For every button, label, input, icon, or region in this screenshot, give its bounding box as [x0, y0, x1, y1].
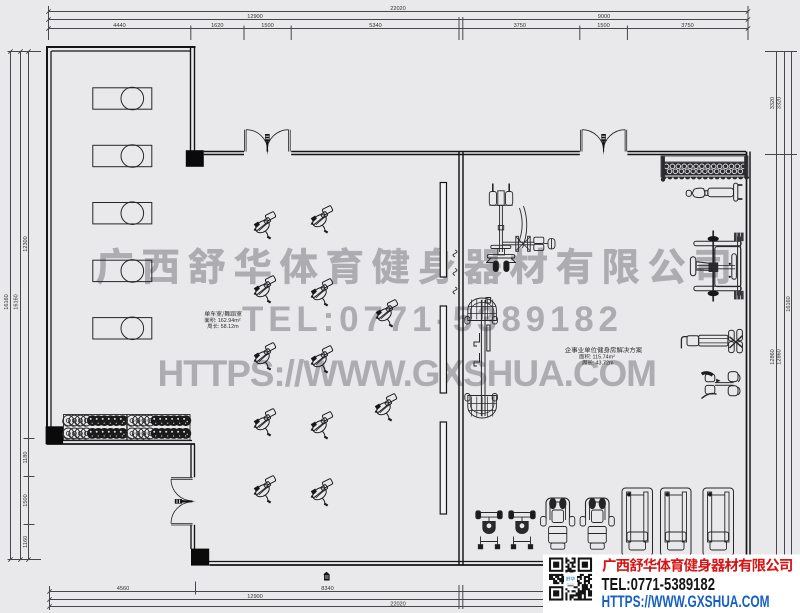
svg-text:16160: 16160: [14, 294, 20, 310]
svg-text:12860: 12860: [777, 349, 783, 365]
svg-text:TEL:0771-5389182: TEL:0771-5389182: [242, 300, 618, 339]
svg-text:1160: 1160: [23, 536, 29, 548]
svg-text:HTTPS://WWW.GXSHUA.COM: HTTPS://WWW.GXSHUA.COM: [602, 592, 770, 611]
svg-text:TEL:0771-5389182: TEL:0771-5389182: [602, 574, 716, 594]
svg-text:1500: 1500: [23, 494, 29, 506]
svg-text:22020: 22020: [390, 601, 406, 607]
svg-text:5340: 5340: [369, 23, 381, 29]
svg-text:1180: 1180: [23, 451, 29, 463]
svg-text:3750: 3750: [681, 23, 693, 29]
svg-text:3750: 3750: [514, 23, 526, 29]
svg-text:: 115.74m²: : 115.74m²: [590, 354, 616, 360]
svg-text:16160: 16160: [4, 294, 10, 310]
svg-text:4440: 4440: [113, 23, 125, 29]
svg-text:22020: 22020: [390, 6, 406, 12]
svg-text:: 58.12m: : 58.12m: [218, 324, 239, 330]
svg-text:1500: 1500: [597, 23, 609, 29]
svg-text:16160: 16160: [786, 296, 792, 312]
svg-text:12900: 12900: [247, 594, 263, 600]
svg-text:SHUA: SHUA: [567, 582, 574, 586]
svg-text:4560: 4560: [117, 586, 129, 592]
svg-text:1620: 1620: [211, 23, 223, 29]
svg-text:9000: 9000: [598, 14, 610, 20]
svg-text:12300: 12300: [23, 236, 29, 252]
svg-text:12900: 12900: [247, 14, 263, 20]
svg-text:8340: 8340: [321, 586, 333, 592]
svg-text:: 43.72m: : 43.72m: [593, 360, 614, 366]
svg-text:12860: 12860: [770, 349, 776, 365]
svg-text:1500: 1500: [261, 23, 273, 29]
svg-text:3320: 3320: [770, 97, 776, 109]
svg-text:3320: 3320: [777, 97, 783, 109]
svg-text:HTTPS://WWW.GXSHUA.COM: HTTPS://WWW.GXSHUA.COM: [158, 353, 658, 394]
